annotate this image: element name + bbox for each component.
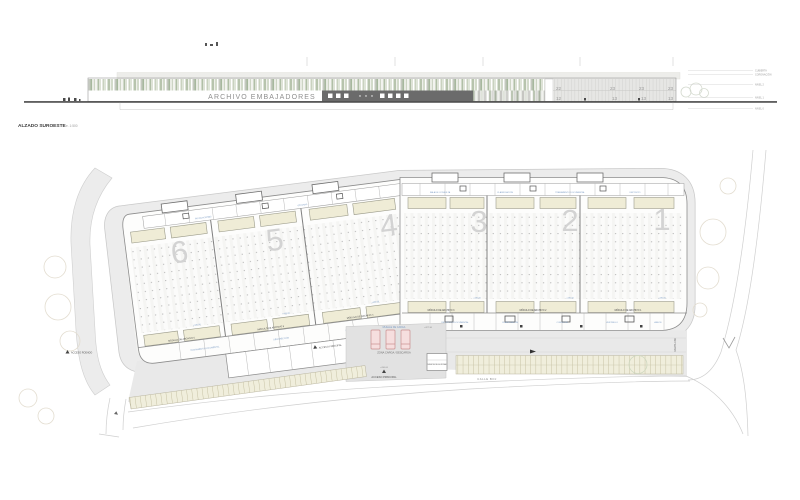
level-label: NIVEL 1 [755, 96, 764, 99]
svg-text:CLASIFICACIÓN: CLASIFICACIÓN [502, 321, 518, 324]
right-wing-shelving-grid [404, 213, 682, 299]
svg-text:12: 12 [556, 96, 562, 101]
level-label: CUBIERTA [755, 69, 767, 72]
dock-level: +427.30 [424, 327, 433, 329]
building-sign: ARCHIVO EMBAJADORES [208, 94, 316, 101]
architectural-sheet: ARCHIVO EMBAJADORES 22 23 23 23 12 13 13… [0, 0, 800, 500]
truck-bays [371, 330, 410, 349]
svg-text:TRATAMIENTO DOCUMENTAL: TRATAMIENTO DOCUMENTAL [555, 191, 585, 194]
facade-door-panel [545, 79, 553, 102]
svg-text:+430.00: +430.00 [566, 298, 574, 300]
svg-text:ASEOS: ASEOS [654, 321, 662, 324]
svg-text:+430.00: +430.00 [473, 298, 481, 300]
svg-text:MÓDULO DE ARCHIVO 1: MÓDULO DE ARCHIVO 1 [615, 309, 643, 312]
svg-text:CONSULTA: CONSULTA [556, 321, 568, 324]
security-booth-label: CASETA SEGURIDAD [427, 363, 448, 366]
elevation-title-block: ALZADO SUROESTE e. 1:500 [18, 123, 78, 129]
entry-level: +430.00 [380, 367, 389, 369]
level-label: NIVEL 0 [755, 107, 764, 110]
south-access-marker [114, 411, 118, 415]
svg-text:MÓDULO DE ARCHIVO 2: MÓDULO DE ARCHIVO 2 [520, 309, 548, 312]
loading-zone-label: ZONA CARGA / DESCARGA [377, 351, 411, 355]
level-label: CORONACIÓN [755, 73, 772, 76]
svg-text:2: 2 [561, 203, 578, 238]
elevation-scale: e. 1:500 [66, 124, 78, 128]
rooftop-equipment [205, 42, 218, 46]
main-access-label: ACCESO PRINCIPAL [371, 375, 397, 379]
east-path [688, 150, 766, 436]
svg-text:22: 22 [556, 86, 562, 91]
svg-text:13: 13 [641, 96, 647, 101]
elevation-building: ARCHIVO EMBAJADORES 22 23 23 23 12 13 13… [88, 78, 676, 102]
svg-text:1: 1 [653, 202, 670, 237]
grid-ticks [307, 57, 673, 66]
elevation-trees-right [681, 83, 709, 98]
svg-text:13: 13 [668, 96, 674, 101]
elevation-title: ALZADO SUROESTE [18, 123, 67, 129]
svg-text:23: 23 [639, 86, 645, 91]
facade-stripe-band-lower [473, 91, 545, 102]
svg-text:MÓDULO DE ARCHIVO 3: MÓDULO DE ARCHIVO 3 [428, 309, 456, 312]
svg-text:VESTÍBULO: VESTÍBULO [606, 321, 618, 324]
elevation-drawing: ARCHIVO EMBAJADORES 22 23 23 23 12 13 13… [18, 42, 777, 129]
svg-text:ACCESO RODADO: ACCESO RODADO [71, 351, 92, 354]
svg-text:+430.00: +430.00 [658, 298, 666, 300]
stair-core [577, 173, 603, 182]
left-road [71, 168, 112, 395]
svg-text:23: 23 [668, 86, 674, 91]
underground-outline [120, 103, 673, 110]
dock-label: MUELLE DE CARGA [383, 326, 406, 329]
facade-stripe-band-upper [88, 79, 552, 91]
svg-text:DEPÓSITO: DEPÓSITO [630, 191, 641, 194]
drawing-canvas: ARCHIVO EMBAJADORES 22 23 23 23 12 13 13… [0, 0, 800, 500]
site-plan-drawing: 6 5 4 MÓDULO DE ARCHIVO 6 MÓDULO DE ARCH… [19, 150, 766, 437]
ramp-label: RAMPA 10% [674, 337, 677, 352]
security-booth: CASETA SEGURIDAD [427, 354, 448, 371]
stair-core [432, 173, 458, 182]
street-label: CALLE BOJ [477, 377, 497, 381]
svg-text:13: 13 [612, 96, 618, 101]
svg-text:3: 3 [470, 204, 487, 239]
svg-text:23: 23 [610, 86, 616, 91]
svg-text:SALA DE CONSULTA: SALA DE CONSULTA [430, 191, 451, 194]
level-label: NIVEL 2 [755, 83, 764, 86]
stair-core [504, 173, 530, 182]
svg-text:CLASIFICACIÓN: CLASIFICACIÓN [497, 191, 513, 194]
